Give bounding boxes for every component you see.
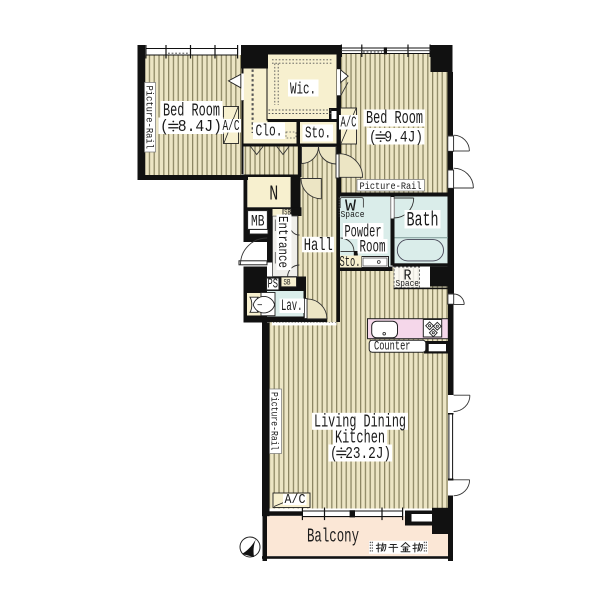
svg-text:Picture-Rail: Picture-Rail	[268, 392, 280, 451]
svg-text:Balcony: Balcony	[307, 526, 359, 548]
svg-text:A/C: A/C	[223, 118, 240, 135]
svg-text:Space: Space	[341, 209, 365, 220]
svg-text:Clo.: Clo.	[256, 123, 283, 142]
svg-text:Picture-Rail: Picture-Rail	[360, 181, 422, 193]
svg-text:Sto.: Sto.	[305, 124, 331, 143]
svg-text:N: N	[269, 183, 278, 207]
svg-text:SB: SB	[284, 278, 291, 288]
svg-text:Sto.: Sto.	[340, 254, 361, 271]
svg-text:Counter: Counter	[374, 340, 411, 354]
svg-text:Room: Room	[360, 237, 386, 257]
svg-text:PS: PS	[268, 277, 279, 293]
svg-text:Picture-Rail: Picture-Rail	[143, 86, 155, 150]
svg-text:MB: MB	[251, 213, 265, 231]
svg-text:Bed Room: Bed Room	[366, 108, 423, 129]
svg-text:Space: Space	[396, 278, 420, 289]
svg-text:A/C: A/C	[341, 115, 357, 132]
svg-text:Wic.: Wic.	[290, 81, 316, 100]
svg-text:A/C: A/C	[285, 492, 306, 508]
svg-text:Entrance: Entrance	[274, 216, 289, 268]
svg-text:Bath: Bath	[407, 210, 439, 233]
svg-text:Hall: Hall	[304, 236, 333, 256]
svg-text:( 9.4J): ( 9.4J)	[369, 129, 423, 147]
svg-text:Lav.: Lav.	[281, 297, 303, 315]
